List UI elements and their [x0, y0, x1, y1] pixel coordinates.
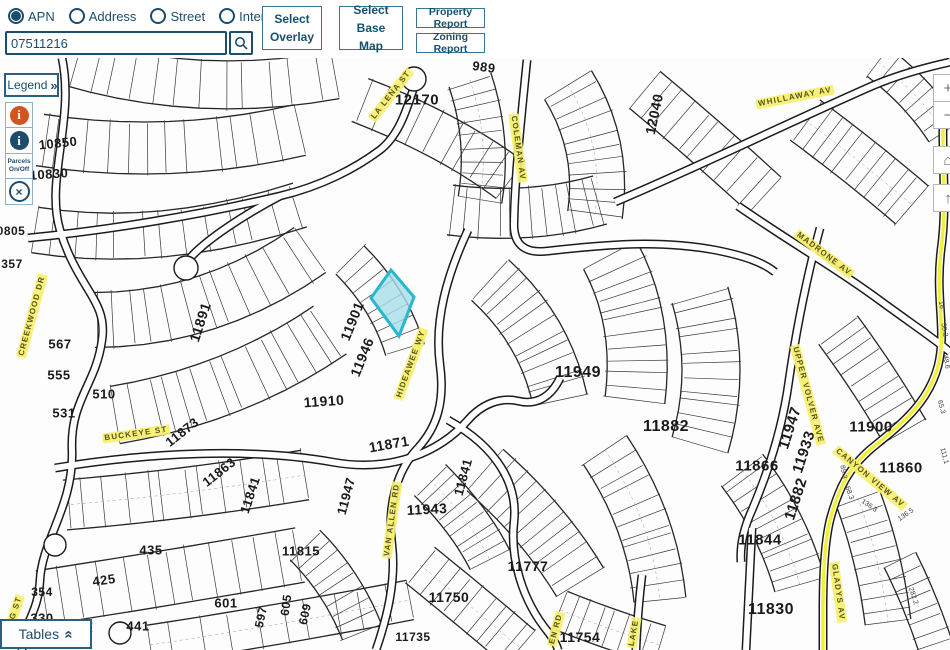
search-toolbar: APN Address Street Intersection Select O… [0, 0, 950, 58]
parcels-toggle-label: Parcels On/Off [7, 158, 30, 175]
clear-selection-button[interactable]: × [5, 178, 33, 205]
parcels-toggle-button[interactable]: Parcels On/Off [5, 153, 33, 180]
search-button[interactable] [229, 31, 253, 55]
search-icon [234, 36, 248, 50]
parcel-linework [0, 0, 950, 650]
radio-icon [150, 8, 166, 24]
zoom-out-button[interactable]: − [933, 101, 950, 129]
radio-selected-icon [8, 8, 24, 24]
info-tool-button[interactable]: i [5, 127, 33, 154]
selected-parcel-highlight [371, 270, 414, 336]
home-extent-button[interactable]: ⌂ [933, 146, 950, 174]
radio-label: Address [89, 9, 137, 24]
legend-label: Legend [7, 78, 47, 92]
search-mode-street[interactable]: Street [150, 8, 205, 24]
legend-button[interactable]: Legend » [4, 73, 59, 97]
map-canvas[interactable]: 1085010830080535756755553151011891118731… [0, 0, 950, 650]
zoom-in-button[interactable]: + [933, 74, 950, 102]
map-tool-stack: i i Parcels On/Off × [5, 103, 33, 205]
radio-label: Street [170, 9, 205, 24]
north-arrow-icon: ↑ [944, 190, 950, 207]
double-chevron-up-icon: « [61, 630, 78, 638]
select-base-map-button[interactable]: Select Base Map [339, 6, 403, 50]
identify-tool-button[interactable]: i [5, 102, 33, 129]
property-report-button[interactable]: Property Report [416, 8, 485, 28]
search-input[interactable] [5, 31, 227, 55]
tables-button[interactable]: Tables « [0, 619, 92, 649]
radio-icon [219, 8, 235, 24]
radio-icon [69, 8, 85, 24]
north-arrow-button[interactable]: ↑ [933, 184, 950, 212]
home-icon: ⌂ [943, 152, 950, 169]
info-orange-icon: i [10, 106, 29, 125]
x-circle-icon: × [9, 181, 30, 202]
radio-label: APN [28, 9, 55, 24]
double-chevron-right-icon: » [50, 78, 55, 93]
select-overlay-button[interactable]: Select Overlay [262, 6, 322, 50]
tables-label: Tables [19, 626, 59, 642]
info-blue-icon: i [10, 131, 29, 150]
search-mode-apn[interactable]: APN [8, 8, 55, 24]
zoning-report-button[interactable]: Zoning Report [416, 33, 485, 53]
search-mode-address[interactable]: Address [69, 8, 137, 24]
parcel-map-application: 1085010830080535756755553151011891118731… [0, 0, 950, 650]
